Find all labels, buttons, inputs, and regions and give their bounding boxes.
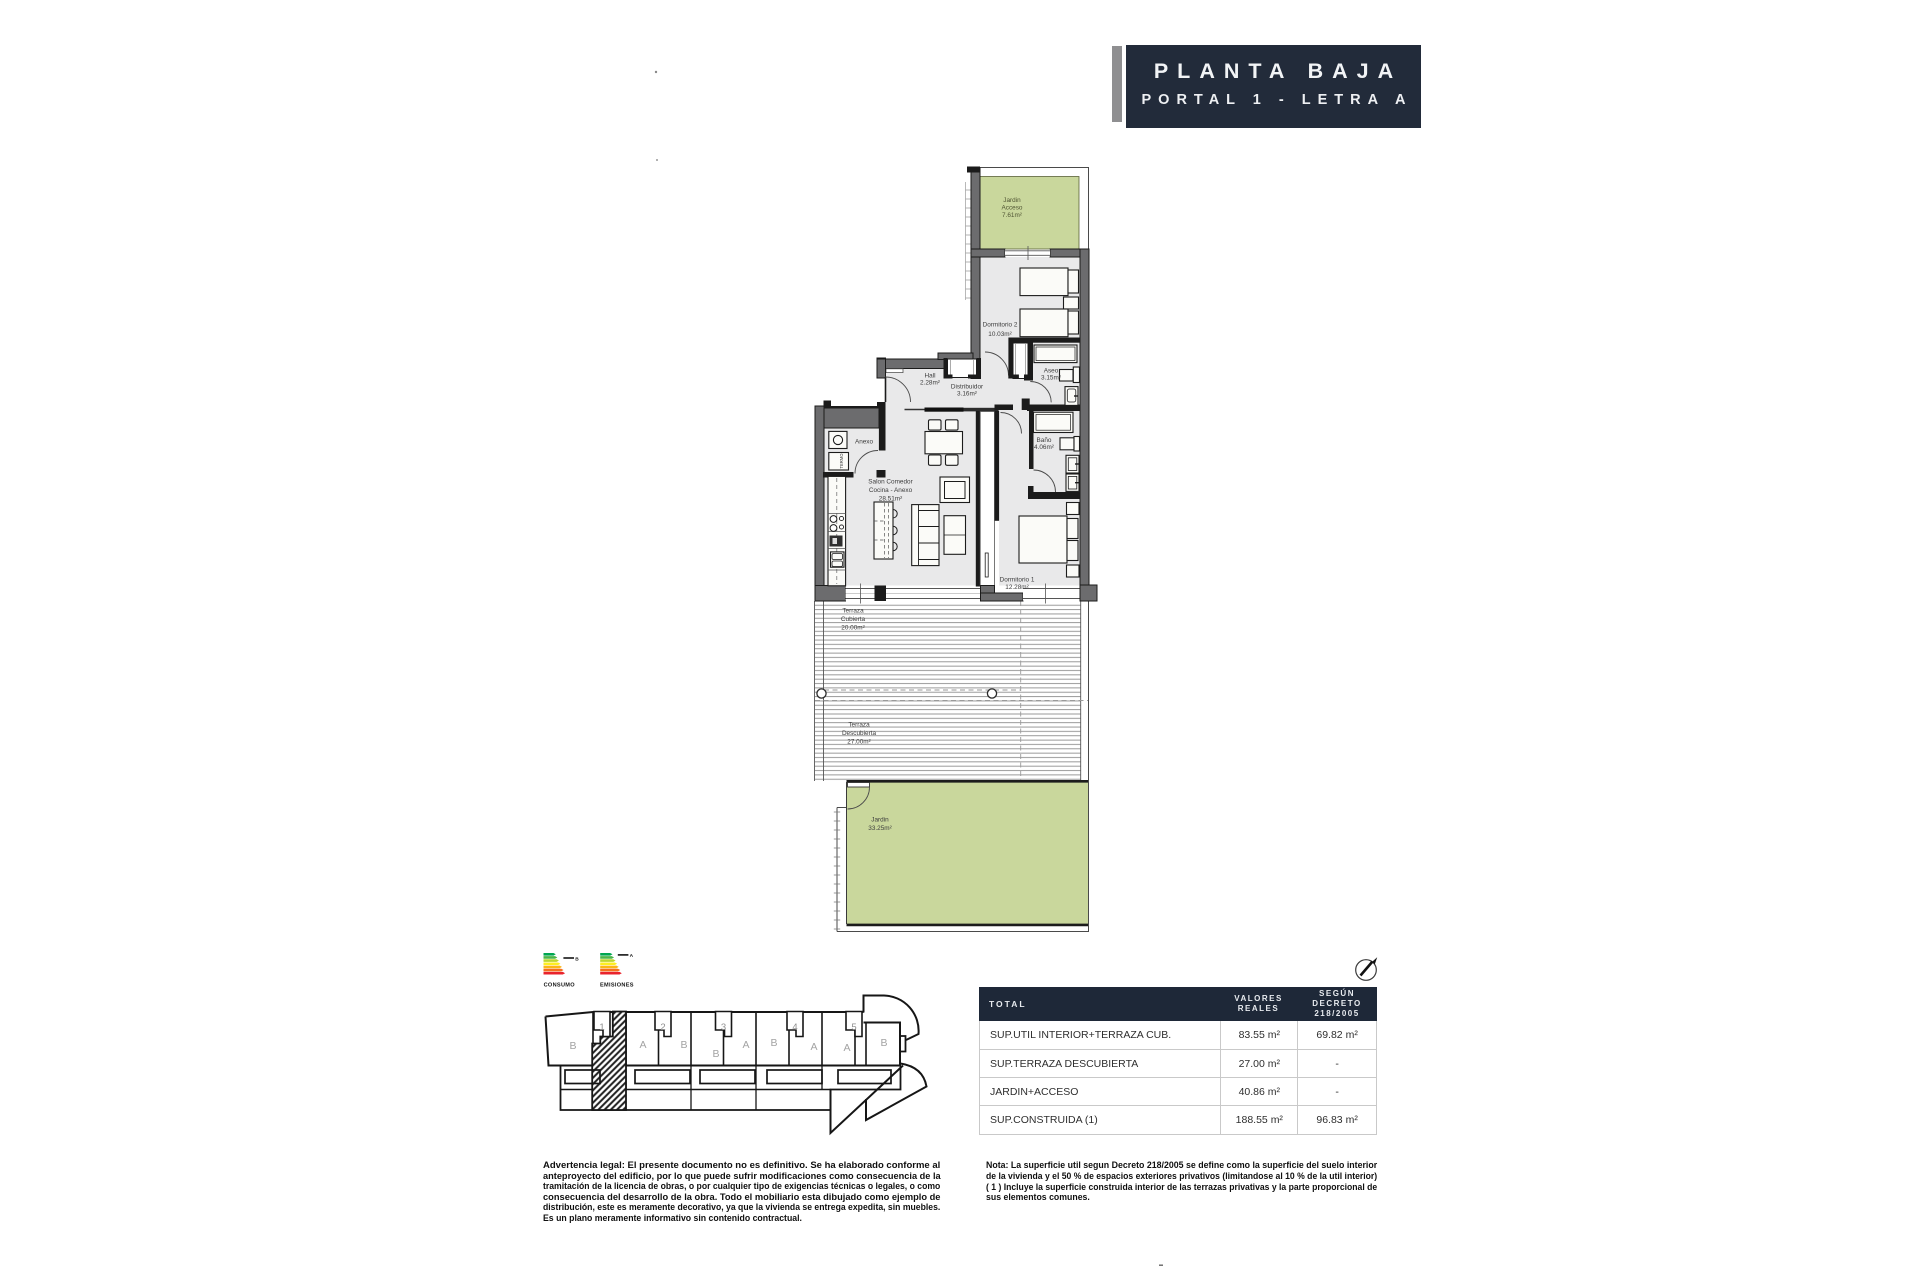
svg-text:CONSUMO: CONSUMO [544,983,576,989]
svg-text:3.15m²: 3.15m² [1041,375,1061,382]
svg-text:Terraza: Terraza [842,608,864,615]
svg-text:1: 1 [599,1022,604,1033]
svg-text:A: A [843,1042,850,1054]
svg-text:A: A [639,1039,646,1051]
svg-text:Terraza: Terraza [848,722,870,729]
svg-text:10.03m²: 10.03m² [988,331,1011,338]
svg-text:Jardin: Jardin [1003,197,1021,204]
svg-text:7.61m²: 7.61m² [1002,212,1022,219]
svg-text:EMISIONES: EMISIONES [600,983,634,989]
svg-text:12.28m²: 12.28m² [1005,584,1028,591]
svg-text:Cubierta: Cubierta [841,616,866,623]
svg-text:Aseo: Aseo [1044,368,1059,375]
svg-text:2.28m²: 2.28m² [920,380,940,387]
svg-text:20.00m²: 20.00m² [841,625,864,632]
svg-text:4.06m²: 4.06m² [1034,444,1054,451]
svg-text:4: 4 [792,1022,797,1033]
svg-text:B: B [680,1039,687,1051]
svg-text:2: 2 [660,1022,665,1033]
svg-text:Jardin: Jardin [871,817,889,824]
svg-text:A: A [630,953,634,959]
svg-text:5: 5 [851,1022,856,1033]
svg-text:3.16m²: 3.16m² [957,391,977,398]
svg-text:A: A [742,1039,749,1051]
svg-text:B: B [575,956,579,962]
svg-text:28.51m²: 28.51m² [879,495,902,502]
svg-text:TERMO: TERMO [839,453,844,469]
svg-text:27.00m²: 27.00m² [847,739,870,746]
svg-text:Dormitorio 1: Dormitorio 1 [1000,577,1035,584]
svg-text:B: B [712,1048,719,1060]
svg-text:Dormitorio 2: Dormitorio 2 [983,322,1018,329]
svg-text:Anexo: Anexo [855,439,874,446]
svg-text:Distribuidor: Distribuidor [951,384,984,391]
svg-text:A: A [810,1041,817,1053]
svg-text:33.25m²: 33.25m² [868,825,891,832]
svg-text:B: B [880,1037,887,1049]
svg-text:B: B [569,1040,576,1052]
svg-text:Acceso: Acceso [1002,205,1023,212]
svg-text:B: B [770,1037,777,1049]
svg-text:Hall: Hall [924,373,935,380]
svg-text:Cocina - Anexo: Cocina - Anexo [869,487,913,494]
svg-text:3: 3 [721,1022,726,1033]
svg-text:Baño: Baño [1037,437,1052,444]
svg-text:Salon Comedor: Salon Comedor [868,479,913,486]
svg-text:Descubierta: Descubierta [842,730,877,737]
